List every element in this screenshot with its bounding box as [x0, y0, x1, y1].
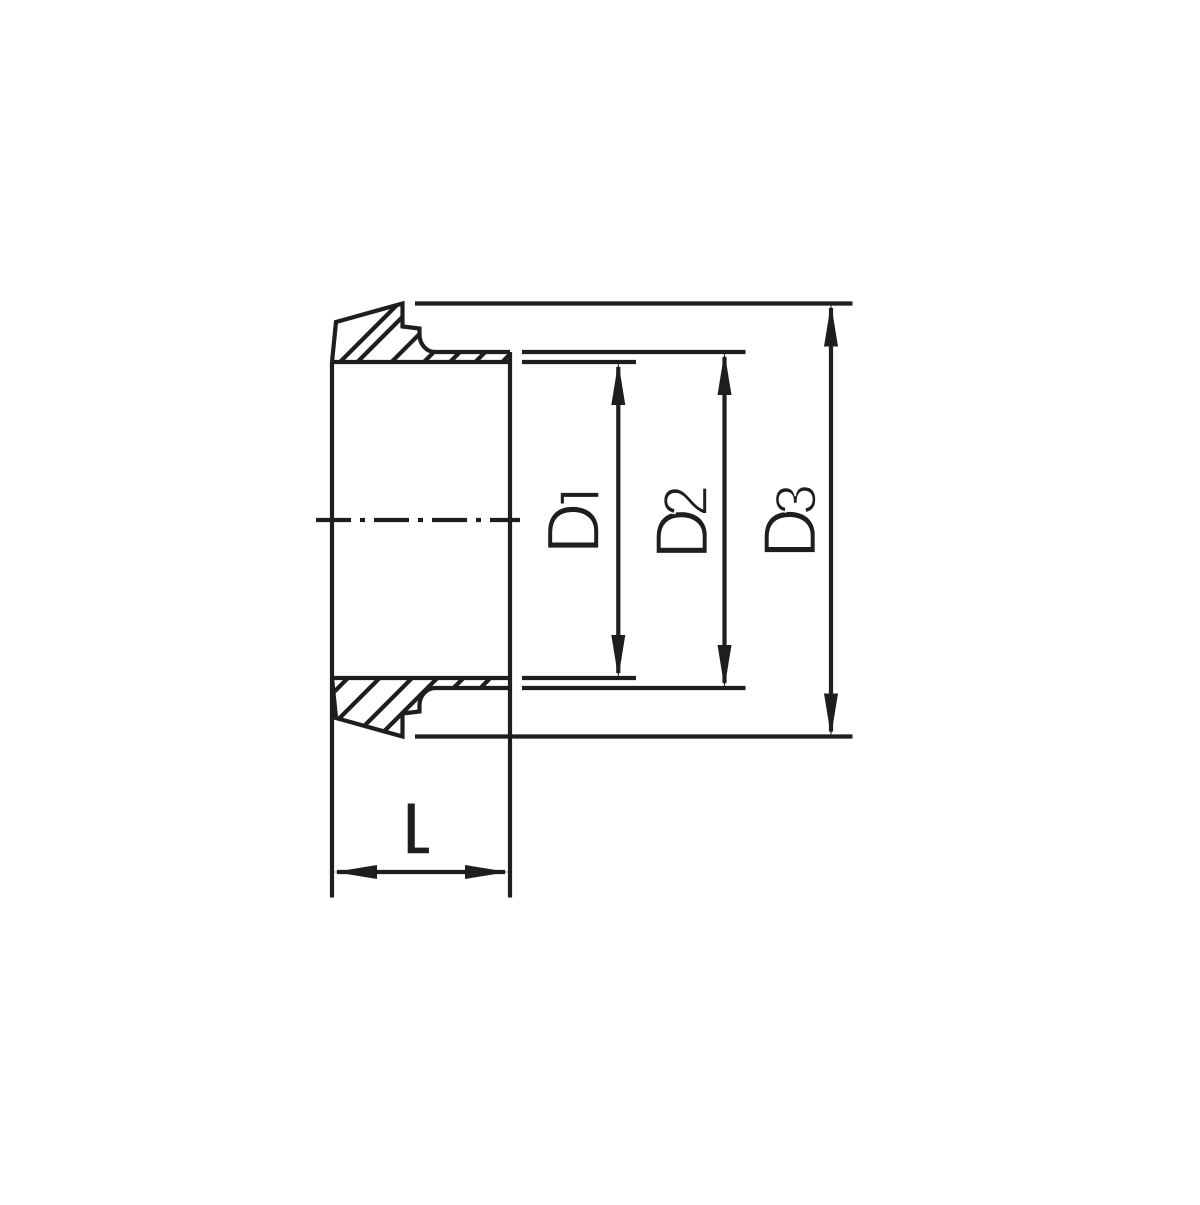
svg-text:3: 3 [763, 484, 827, 515]
svg-text:2: 2 [651, 485, 721, 517]
svg-text:D: D [531, 503, 615, 555]
